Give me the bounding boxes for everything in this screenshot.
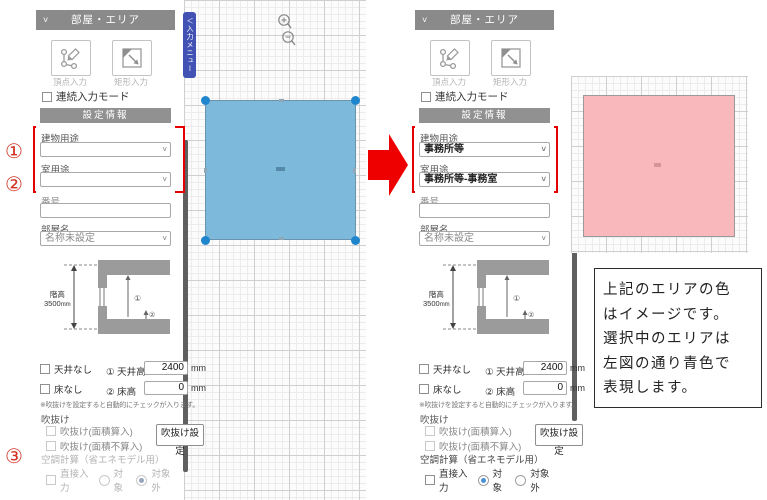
no-floor-checkbox[interactable]: 床なし [419, 382, 462, 396]
aircon-options-row: 直接入力 対象 対象外 [46, 466, 175, 494]
settings-section-header: 設定情報 [40, 108, 171, 123]
direct-input-checkbox[interactable] [425, 475, 435, 485]
no-ceiling-checkbox[interactable]: 天井なし [40, 362, 92, 376]
checkbox-icon[interactable] [421, 92, 431, 102]
ceiling-height-unit: mm [570, 363, 585, 373]
void-included-label: 吹抜け(面積算入) [60, 424, 133, 438]
not-target-label: 対象外 [151, 466, 175, 494]
room-area-panel-after: ˅ 部屋・エリア 頂点入力 矩形入力 連続入力モード 設定情報 建物用途 事務所… [415, 10, 554, 488]
vertex-input-icon [59, 46, 83, 70]
void-included-label: 吹抜け(面積算入) [439, 424, 512, 438]
void-note: ※吹抜けを設定すると自動的にチェックが入ります。 [40, 400, 199, 410]
svg-text:②: ② [149, 312, 155, 319]
target-label: 対象 [114, 466, 130, 494]
ceiling-height-unit: mm [191, 363, 206, 373]
note-line: 上記のエリアの色 [603, 278, 753, 303]
number-input[interactable] [40, 203, 171, 218]
vertex-input-label: 頂点入力 [419, 76, 479, 88]
rectangle-input-button[interactable] [112, 40, 152, 76]
room-name-select[interactable]: 名称未設定˅ [40, 231, 171, 246]
void-settings-button[interactable]: 吹抜け設定 [535, 424, 583, 446]
panel-title: 部屋・エリア [450, 14, 519, 26]
transition-arrow [368, 134, 408, 201]
edge-tick [279, 99, 284, 102]
drawing-canvas-left[interactable] [184, 0, 366, 500]
checkbox-icon[interactable] [419, 384, 429, 394]
note-line: 表現します。 [603, 376, 753, 401]
rectangle-input-button[interactable] [491, 40, 531, 76]
void-included-checkbox[interactable]: 吹抜け(面積算入) [46, 424, 133, 438]
input-menu-tab[interactable]: ＜入力メニュー [183, 12, 196, 78]
void-excluded-checkbox[interactable]: 吹抜け(面積不算入) [425, 439, 521, 453]
checkbox-icon[interactable] [42, 92, 52, 102]
callout-number-2: ② [5, 175, 23, 195]
selected-area-shape[interactable] [205, 100, 356, 240]
checkbox-icon[interactable] [425, 426, 435, 436]
building-use-select[interactable]: 事務所等˅ [419, 142, 550, 157]
checkbox-icon[interactable] [40, 364, 50, 374]
not-target-radio[interactable] [136, 475, 147, 486]
direct-input-label: 直接入力 [60, 466, 92, 494]
direct-input-label: 直接入力 [439, 466, 471, 494]
checkbox-icon[interactable] [425, 441, 435, 451]
vertex-input-icon [438, 46, 462, 70]
checkbox-icon[interactable] [46, 426, 56, 436]
room-use-select[interactable]: 事務所等-事務室˅ [419, 172, 550, 187]
void-note: ※吹抜けを設定すると自動的にチェックが入ります。 [419, 400, 578, 410]
floor-h-unit: mm [570, 383, 585, 393]
ceiling-height-input[interactable]: 2400 [523, 361, 567, 375]
target-radio[interactable] [478, 475, 489, 486]
direct-input-checkbox[interactable] [46, 475, 56, 485]
ceiling-height-label: ① 天井高 [106, 364, 146, 378]
floor-h-unit: mm [191, 383, 206, 393]
aircon-section-title: 空調計算（省エネモデル用） [41, 452, 165, 466]
callout-number-1: ① [5, 142, 23, 162]
target-radio[interactable] [99, 475, 110, 486]
zoom-out-icon[interactable] [281, 30, 297, 53]
svg-text:①: ① [134, 294, 141, 303]
ceiling-height-label: ① 天井高 [485, 364, 525, 378]
ceiling-height-input[interactable]: 2400 [144, 361, 188, 375]
area-center-label [276, 167, 285, 171]
svg-text:①: ① [513, 294, 520, 303]
app-window: ＜入力メニュー ① ② ③ 上記のエリアの色 はイメージです。 選択中のエリアは… [0, 0, 767, 500]
floor-height-diagram: ① ② 階高 3500mm [415, 256, 554, 359]
note-line: 選択中のエリアは [603, 327, 753, 352]
no-ceiling-label: 天井なし [433, 362, 471, 376]
floor-height-diagram: ① ② 階高 3500mm [36, 256, 175, 359]
number-input[interactable] [419, 203, 550, 218]
aircon-section-title: 空調計算（省エネモデル用） [420, 452, 544, 466]
rect-input-label: 矩形入力 [480, 76, 540, 88]
panel-header[interactable]: ˅ 部屋・エリア [415, 10, 554, 30]
panel-title: 部屋・エリア [71, 14, 140, 26]
void-excluded-checkbox[interactable]: 吹抜け(面積不算入) [46, 439, 142, 453]
note-line: はイメージです。 [603, 303, 753, 328]
void-included-checkbox[interactable]: 吹抜け(面積算入) [425, 424, 512, 438]
drawing-canvas-right[interactable] [571, 76, 748, 253]
edge-tick [204, 168, 207, 173]
vertex-handle[interactable] [201, 96, 210, 105]
rectangle-input-icon [499, 46, 523, 70]
floor-height-text: 階高 3500mm [44, 290, 71, 310]
continuous-input-checkbox[interactable]: 連続入力モード [42, 89, 130, 104]
collapse-chevron-icon[interactable]: ˅ [422, 10, 428, 30]
vertex-handle[interactable] [351, 96, 360, 105]
input-menu-label: 入力メニュー [186, 25, 193, 73]
room-name-select[interactable]: 名称未設定˅ [419, 231, 550, 246]
result-area-shape[interactable] [583, 95, 735, 237]
not-target-radio[interactable] [515, 475, 526, 486]
edge-tick [353, 168, 356, 173]
not-target-label: 対象外 [530, 466, 554, 494]
continuous-input-label: 連続入力モード [435, 89, 509, 104]
chevron-down-icon: ˅ [541, 173, 546, 186]
no-ceiling-label: 天井なし [54, 362, 92, 376]
panel-header[interactable]: ˅ 部屋・エリア [36, 10, 175, 30]
vertex-input-label: 頂点入力 [40, 76, 100, 88]
chevron-down-icon: ˅ [162, 143, 167, 156]
chevron-down-icon: ˅ [541, 232, 546, 245]
continuous-input-label: 連続入力モード [56, 89, 130, 104]
no-floor-checkbox[interactable]: 床なし [40, 382, 83, 396]
no-ceiling-checkbox[interactable]: 天井なし [419, 362, 471, 376]
void-excluded-label: 吹抜け(面積不算入) [439, 439, 521, 453]
svg-text:②: ② [528, 312, 534, 319]
vertex-input-button[interactable] [430, 40, 470, 76]
chevron-down-icon: ˅ [541, 143, 546, 156]
checkbox-icon[interactable] [40, 384, 50, 394]
chevron-down-icon: ˅ [162, 232, 167, 245]
rect-input-label: 矩形入力 [101, 76, 161, 88]
rectangle-input-icon [120, 46, 144, 70]
edge-tick [279, 237, 284, 240]
area-center-label [654, 163, 661, 167]
floor-h-label: ② 床高 [485, 384, 515, 398]
settings-section-header: 設定情報 [419, 108, 550, 123]
building-use-select[interactable]: ˅ [40, 142, 171, 157]
checkbox-icon[interactable] [46, 441, 56, 451]
aircon-options-row: 直接入力 対象 対象外 [425, 466, 554, 494]
note-line: 左図の通り青色で [603, 352, 753, 377]
chevron-down-icon: ˅ [162, 173, 167, 186]
no-floor-label: 床なし [433, 382, 462, 396]
void-settings-button[interactable]: 吹抜け設定 [156, 424, 204, 446]
floor-h-label: ② 床高 [106, 384, 136, 398]
target-label: 対象 [493, 466, 509, 494]
vertex-handle[interactable] [351, 236, 360, 245]
collapse-chevron-icon[interactable]: ˅ [43, 10, 49, 30]
room-area-panel-before: ˅ 部屋・エリア 頂点入力 矩形入力 連続入力モード 設定情報 建物用途 ˅ 室… [36, 10, 175, 488]
continuous-input-checkbox[interactable]: 連続入力モード [421, 89, 509, 104]
checkbox-icon[interactable] [419, 364, 429, 374]
note-box: 上記のエリアの色 はイメージです。 選択中のエリアは 左図の通り青色で 表現しま… [594, 268, 762, 408]
room-use-select[interactable]: ˅ [40, 172, 171, 187]
vertex-handle[interactable] [201, 236, 210, 245]
floor-height-text: 階高 3500mm [423, 290, 450, 310]
floor-h-input[interactable]: 0 [144, 381, 188, 395]
floor-h-input[interactable]: 0 [523, 381, 567, 395]
void-excluded-label: 吹抜け(面積不算入) [60, 439, 142, 453]
callout-number-3: ③ [5, 447, 23, 467]
vertex-input-button[interactable] [51, 40, 91, 76]
no-floor-label: 床なし [54, 382, 83, 396]
tab-chevron-icon: ＜ [186, 17, 193, 25]
